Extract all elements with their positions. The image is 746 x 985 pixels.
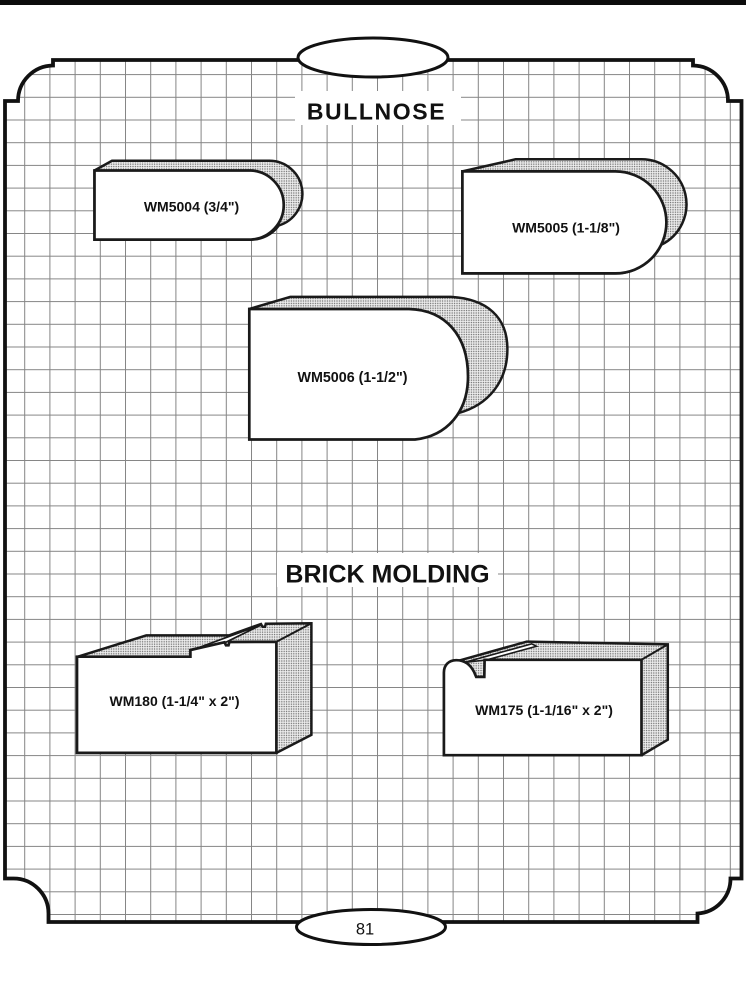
svg-text:WM5005 (1-1/8"): WM5005 (1-1/8") (512, 219, 620, 235)
svg-text:81: 81 (356, 921, 374, 939)
svg-text:WM5006 (1-1/2"): WM5006 (1-1/2") (297, 370, 407, 386)
svg-text:WM5004 (3/4"): WM5004 (3/4") (144, 198, 239, 214)
svg-text:WM180 (1-1/4" x 2"): WM180 (1-1/4" x 2") (110, 693, 240, 709)
svg-text:BRICK MOLDING: BRICK MOLDING (285, 561, 489, 589)
svg-text:WM175 (1-1/16" x 2"): WM175 (1-1/16" x 2") (475, 702, 613, 718)
svg-text:BULLNOSE: BULLNOSE (307, 99, 446, 125)
